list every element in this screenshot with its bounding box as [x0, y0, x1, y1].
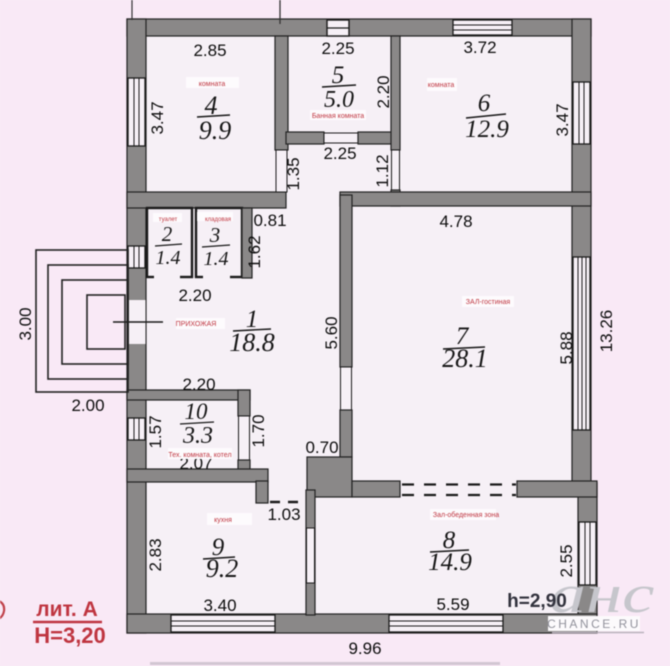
- svg-text:2.25: 2.25: [321, 39, 354, 58]
- svg-text:0.81: 0.81: [253, 211, 286, 230]
- svg-text:1.03: 1.03: [267, 505, 300, 524]
- svg-text:1.4: 1.4: [156, 247, 181, 269]
- svg-text:5.59: 5.59: [436, 595, 469, 614]
- svg-text:Банная комната: Банная комната: [312, 113, 364, 120]
- svg-text:13.26: 13.26: [597, 310, 616, 353]
- svg-text:3.00: 3.00: [16, 307, 35, 340]
- svg-text:ПРИХОЖАЯ: ПРИХОЖАЯ: [176, 321, 217, 328]
- svg-text:комната: комната: [199, 81, 226, 88]
- svg-text:2.20: 2.20: [182, 375, 215, 394]
- svg-text:1.70: 1.70: [249, 414, 268, 447]
- svg-text:2.00: 2.00: [71, 396, 104, 415]
- svg-text:2.85: 2.85: [193, 41, 226, 60]
- svg-text:5: 5: [332, 62, 345, 89]
- svg-text:2.20: 2.20: [374, 75, 393, 108]
- svg-text:2.25: 2.25: [323, 144, 356, 163]
- svg-text:1.57: 1.57: [146, 415, 165, 448]
- svg-text:Зал-обеденная зона: Зал-обеденная зона: [433, 511, 499, 519]
- svg-text:5.88: 5.88: [557, 331, 576, 364]
- svg-text:комната: комната: [428, 82, 455, 89]
- svg-text:кухня: кухня: [214, 517, 232, 524]
- svg-text:CHANCE.RU: CHANCE.RU: [547, 617, 641, 631]
- svg-text:5.60: 5.60: [322, 316, 341, 349]
- svg-text:1.12: 1.12: [373, 154, 392, 187]
- svg-text:3.3: 3.3: [182, 423, 213, 449]
- svg-text:1.4: 1.4: [204, 248, 229, 270]
- svg-text:3.47: 3.47: [553, 103, 572, 136]
- svg-text:Тех. комната, котел: Тех. комната, котел: [168, 452, 231, 459]
- svg-text:H=3,20: H=3,20: [34, 623, 106, 648]
- svg-text:3: 3: [209, 223, 221, 247]
- svg-text:2.83: 2.83: [146, 538, 165, 571]
- svg-text:6: 6: [478, 90, 491, 117]
- svg-text:10: 10: [185, 399, 209, 424]
- svg-text:14.9: 14.9: [428, 549, 472, 576]
- svg-text:3.72: 3.72: [463, 38, 496, 57]
- svg-text:0.70: 0.70: [305, 438, 338, 457]
- svg-text:18.8: 18.8: [229, 328, 275, 357]
- svg-text:ЗАЛ-гостиная: ЗАЛ-гостиная: [466, 299, 511, 306]
- svg-text:1.35: 1.35: [284, 157, 303, 190]
- svg-text:5.0: 5.0: [324, 87, 354, 113]
- svg-text:28.1: 28.1: [442, 344, 488, 373]
- svg-text:3.40: 3.40: [203, 596, 236, 615]
- svg-text:2.20: 2.20: [178, 286, 211, 305]
- svg-text:9.2: 9.2: [206, 554, 239, 583]
- svg-text:9.9: 9.9: [199, 116, 232, 145]
- svg-text:лит. А: лит. А: [36, 598, 98, 621]
- svg-text:12.9: 12.9: [465, 116, 509, 143]
- svg-text:2: 2: [162, 222, 173, 246]
- svg-text:9.96: 9.96: [348, 639, 381, 658]
- svg-text:h=2,90: h=2,90: [507, 591, 567, 612]
- svg-text:3.47: 3.47: [148, 101, 167, 134]
- svg-text:1.62: 1.62: [245, 235, 264, 268]
- svg-text:4.78: 4.78: [439, 212, 472, 231]
